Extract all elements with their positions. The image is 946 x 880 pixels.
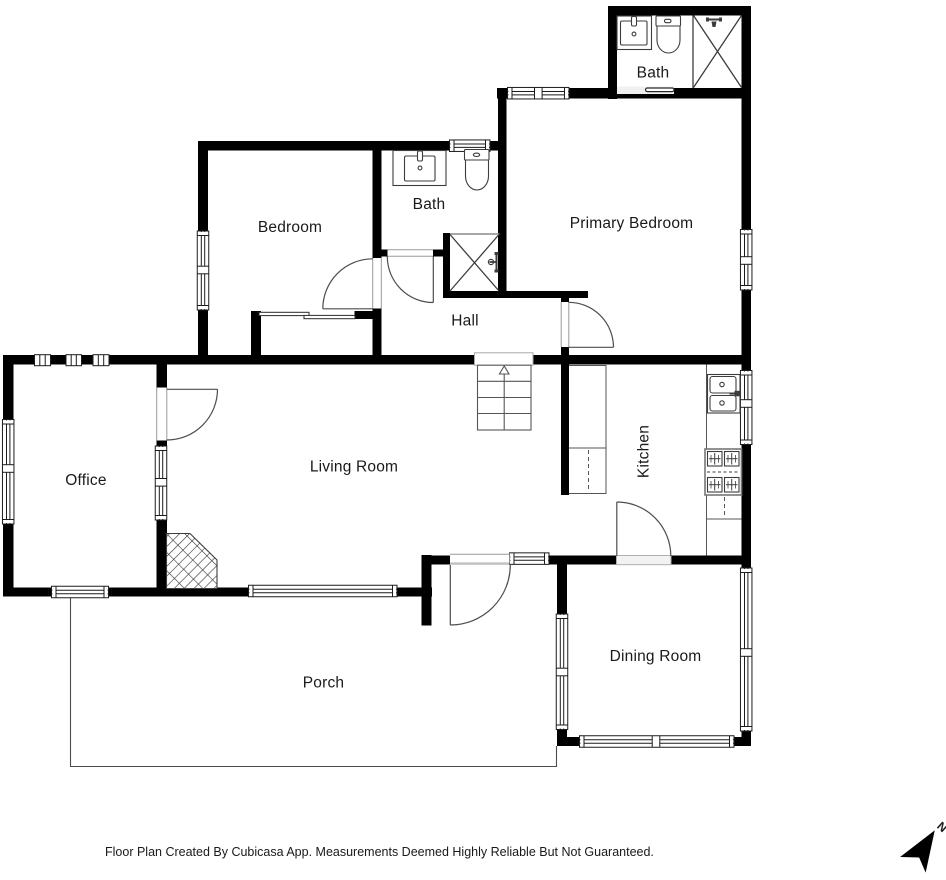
svg-text:Bedroom: Bedroom bbox=[258, 219, 322, 236]
svg-text:Office: Office bbox=[65, 472, 106, 489]
svg-text:Primary Bedroom: Primary Bedroom bbox=[570, 215, 694, 232]
svg-text:Living Room: Living Room bbox=[310, 459, 398, 476]
svg-text:Floor Plan Created By Cubicasa: Floor Plan Created By Cubicasa App. Meas… bbox=[105, 845, 654, 859]
svg-text:Porch: Porch bbox=[303, 675, 345, 692]
svg-text:Dining Room: Dining Room bbox=[610, 648, 702, 665]
svg-text:Bath: Bath bbox=[637, 65, 670, 82]
svg-text:Kitchen: Kitchen bbox=[636, 425, 653, 478]
svg-text:Bath: Bath bbox=[413, 196, 446, 213]
svg-text:Hall: Hall bbox=[451, 313, 479, 330]
